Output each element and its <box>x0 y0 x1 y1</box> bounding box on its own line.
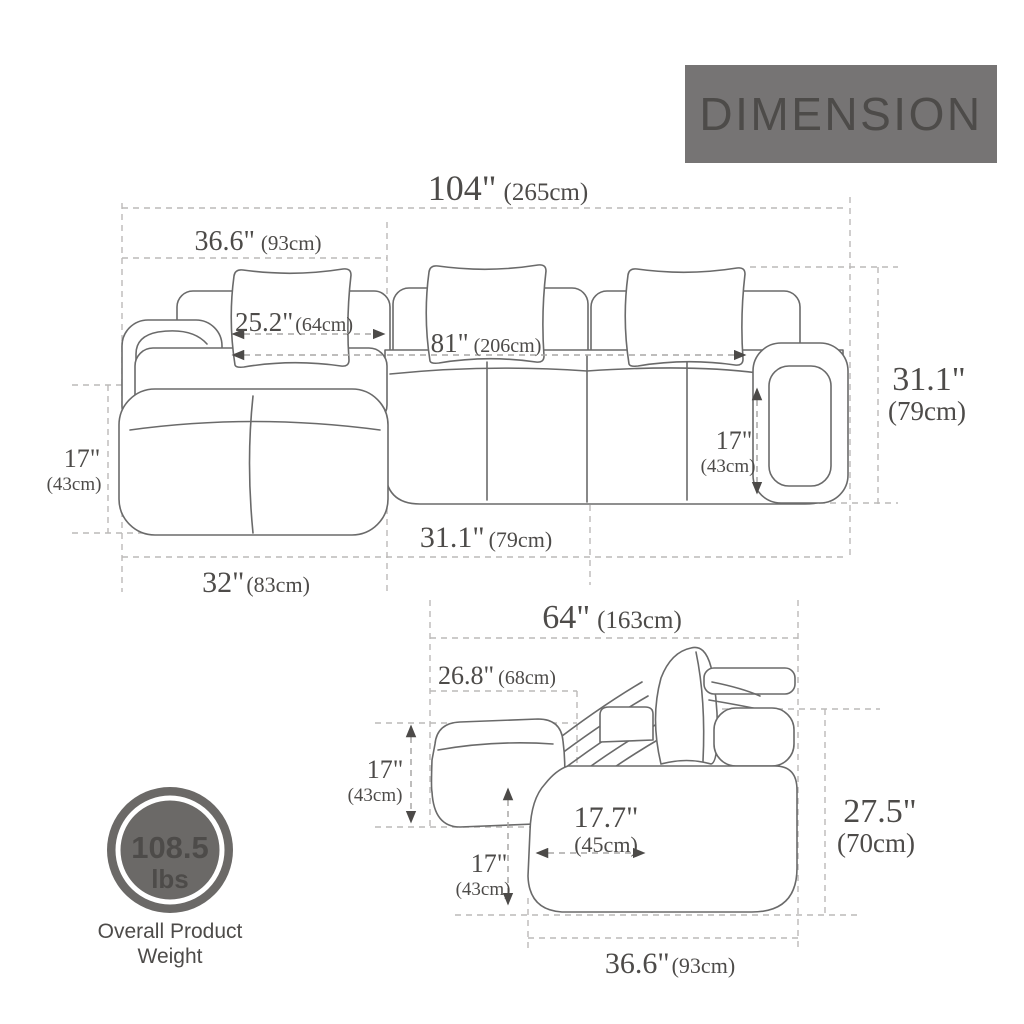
sofa-top-view <box>119 265 848 535</box>
dimension-diagram: DIMENSION <box>0 0 1024 1024</box>
label-base-depth: 36.6"(93cm) <box>605 947 735 980</box>
label-chaise-seat-width-cm: (43cm) <box>47 474 102 495</box>
weight-caption-line2: Weight <box>138 945 203 968</box>
weight-value: 108.5 <box>131 830 209 865</box>
label-seat-module-depth: 31.1"(79cm) <box>420 521 552 554</box>
label-seat-height-in: 17" <box>471 849 508 878</box>
label-side-seat-depth-in: 17.7" <box>574 801 639 834</box>
banner-title: DIMENSION <box>699 88 982 140</box>
back-pillow <box>625 268 745 366</box>
label-seat-depth-in: 17" <box>716 426 753 455</box>
label-chaise-length: 32"(83cm) <box>202 566 310 599</box>
label-chaise-seat-width-in: 17" <box>64 444 101 473</box>
label-overall-depth: 64"(163cm) <box>542 599 682 636</box>
weight-badge: 108.5 lbs Overall Product Weight <box>98 787 243 968</box>
dimension-banner: DIMENSION <box>685 65 997 163</box>
label-chaise-extension: 26.8"(68cm) <box>438 661 556 690</box>
chaise-block <box>119 389 388 535</box>
weight-unit: lbs <box>151 864 189 894</box>
back-top-band <box>704 668 795 694</box>
dimension-diagram-page: DIMENSION <box>0 0 1024 1024</box>
label-seat-height-cm: (43cm) <box>456 879 511 900</box>
label-side-overall-height-cm: (70cm) <box>837 828 915 858</box>
label-side-overall-height-in: 27.5" <box>843 793 916 830</box>
label-ottoman-height-in: 17" <box>367 755 404 784</box>
label-seat-depth-cm: (43cm) <box>701 456 756 477</box>
weight-caption-line1: Overall Product <box>98 920 243 943</box>
far-armrest <box>600 707 653 742</box>
near-armrest <box>714 708 794 766</box>
label-chaise-width: 36.6"(93cm) <box>194 226 321 257</box>
label-ottoman-height-cm: (43cm) <box>348 785 403 806</box>
label-overall-height-cm: (79cm) <box>888 396 966 426</box>
label-overall-width: 104"(265cm) <box>428 168 588 208</box>
label-side-seat-depth-cm: (45cm) <box>574 832 638 857</box>
seat-front-block <box>528 766 797 912</box>
label-overall-height-in: 31.1" <box>892 361 965 398</box>
right-armrest <box>753 343 848 503</box>
side-back-pillow <box>656 647 718 764</box>
